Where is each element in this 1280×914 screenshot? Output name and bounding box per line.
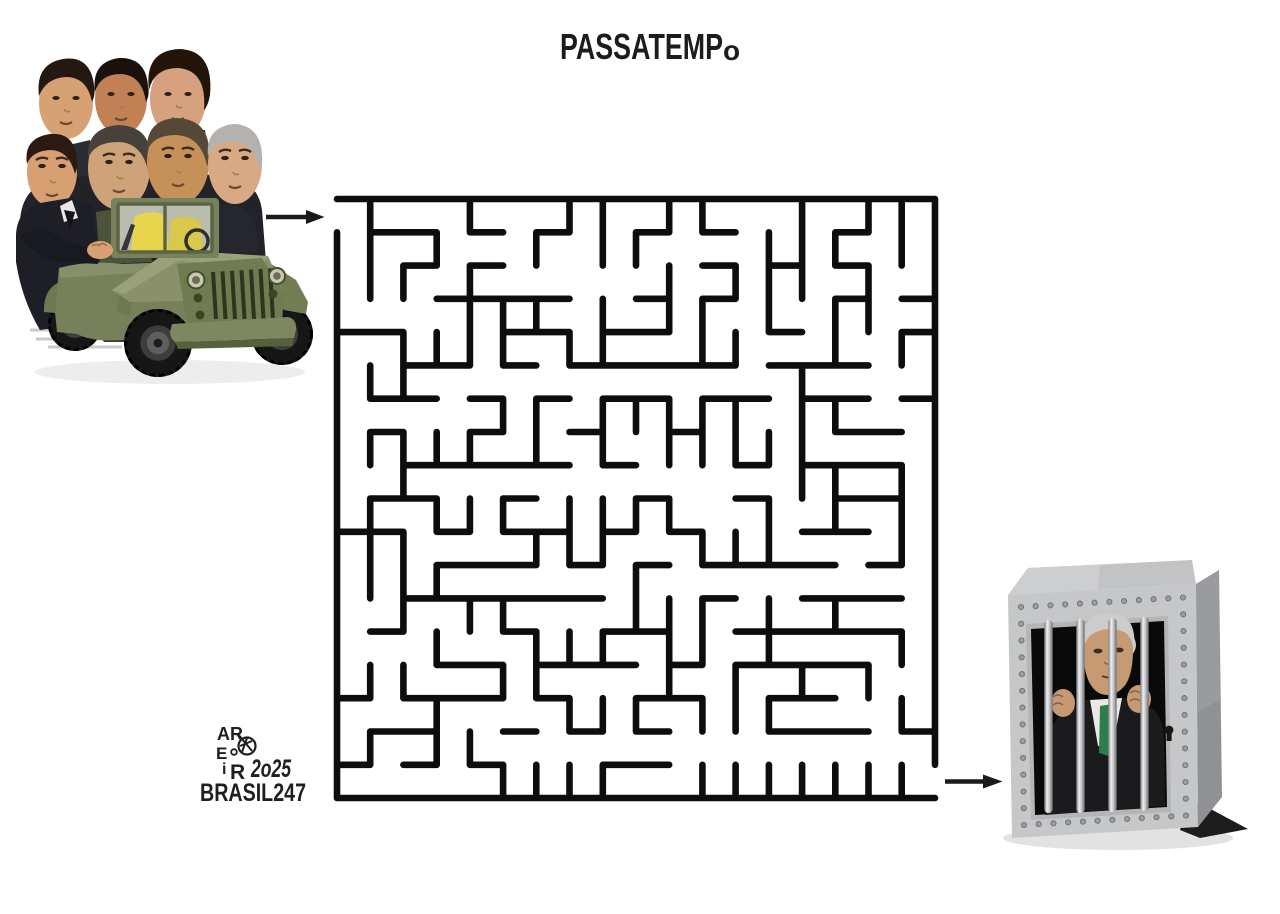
svg-text:i: i (222, 761, 226, 778)
svg-text:BRASIL247: BRASIL247 (200, 779, 306, 807)
svg-text:PASSATEMP: PASSATEMP (560, 26, 723, 67)
svg-text:o: o (723, 35, 740, 66)
